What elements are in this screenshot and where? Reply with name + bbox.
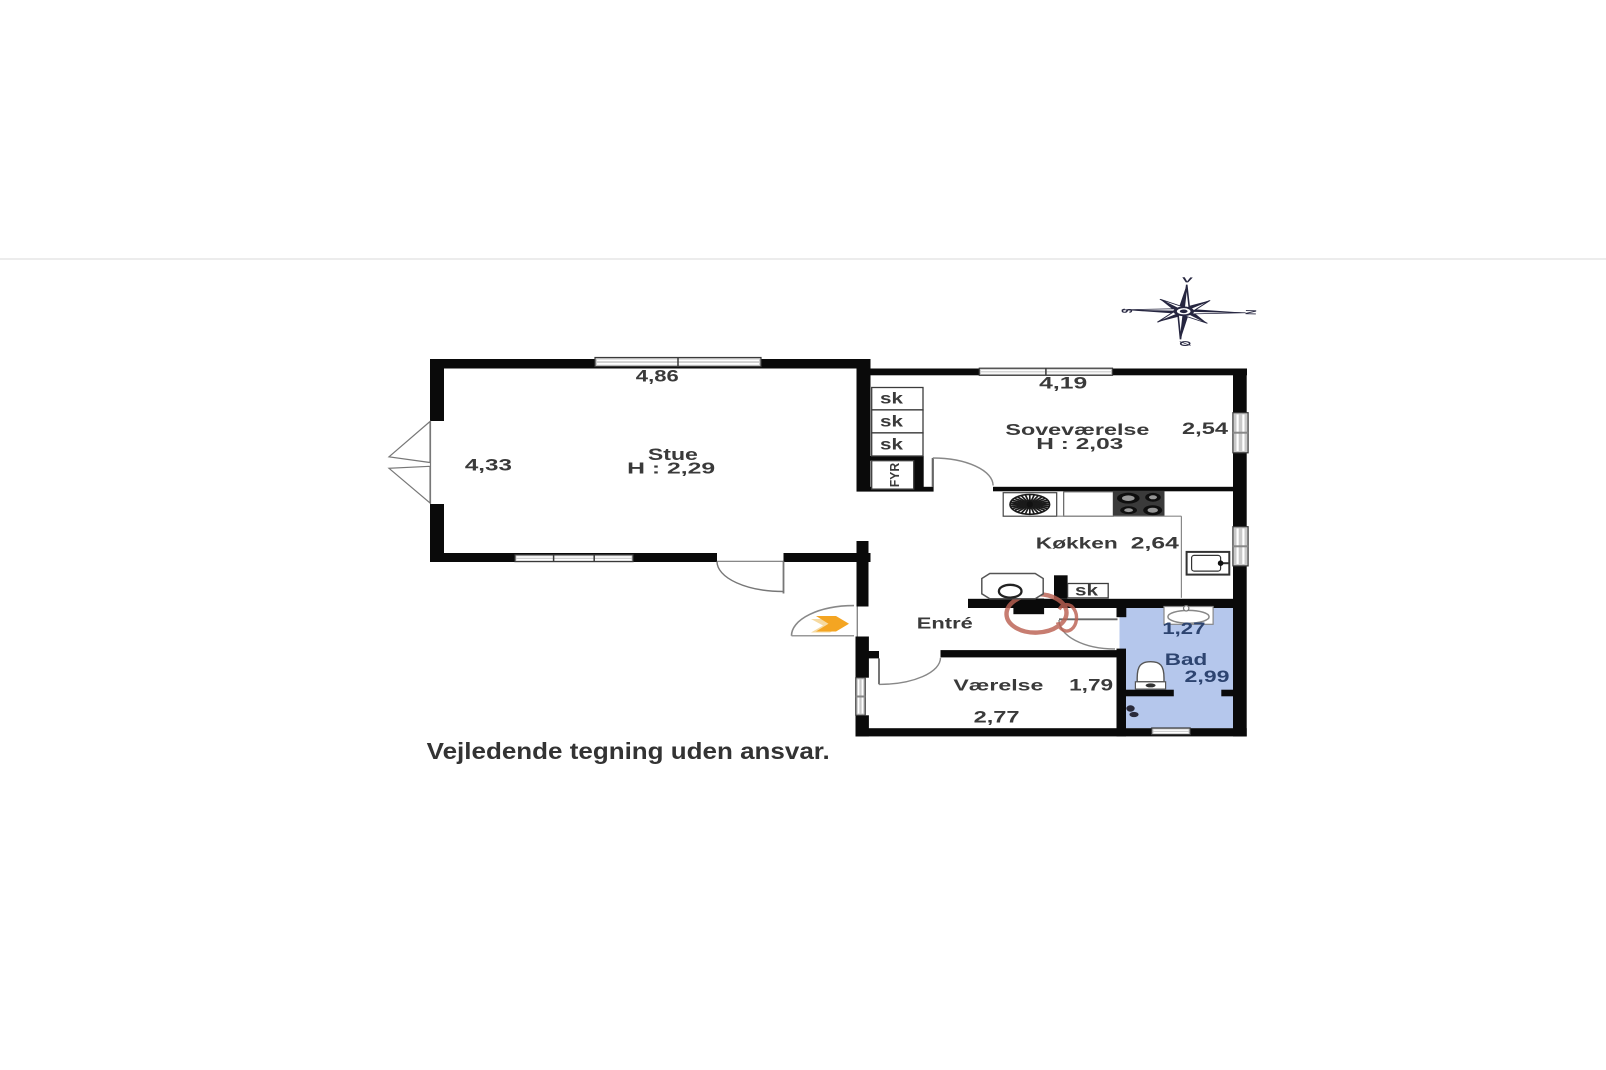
svg-text:1,79: 1,79: [1069, 677, 1113, 695]
svg-text:H : 2,03: H : 2,03: [1036, 436, 1123, 453]
svg-text:Vejledende tegning uden ansvar: Vejledende tegning uden ansvar.: [427, 738, 830, 764]
svg-text:Værelse: Værelse: [953, 678, 1043, 695]
svg-text:N: N: [1242, 310, 1259, 315]
svg-text:Ø: Ø: [1176, 341, 1193, 347]
svg-text:H : 2,29: H : 2,29: [627, 461, 715, 478]
svg-text:sk: sk: [880, 413, 903, 430]
svg-text:4,86: 4,86: [636, 368, 679, 386]
svg-text:2,99: 2,99: [1185, 668, 1230, 686]
svg-text:V: V: [1181, 276, 1193, 285]
svg-text:Bad: Bad: [1165, 650, 1208, 669]
svg-text:2,64: 2,64: [1131, 535, 1180, 553]
svg-text:4,19: 4,19: [1039, 375, 1087, 393]
svg-text:sk: sk: [1075, 582, 1098, 599]
svg-text:1,27: 1,27: [1162, 620, 1205, 638]
svg-text:2,77: 2,77: [974, 709, 1020, 727]
svg-text:S: S: [1118, 308, 1135, 313]
svg-text:2,54: 2,54: [1182, 420, 1229, 438]
svg-text:sk: sk: [880, 391, 903, 408]
svg-text:4,33: 4,33: [465, 457, 512, 475]
svg-text:Entré: Entré: [917, 616, 973, 633]
svg-text:FYR: FYR: [888, 463, 902, 488]
svg-text:sk: sk: [880, 436, 903, 453]
svg-text:Køkken: Køkken: [1036, 536, 1118, 553]
